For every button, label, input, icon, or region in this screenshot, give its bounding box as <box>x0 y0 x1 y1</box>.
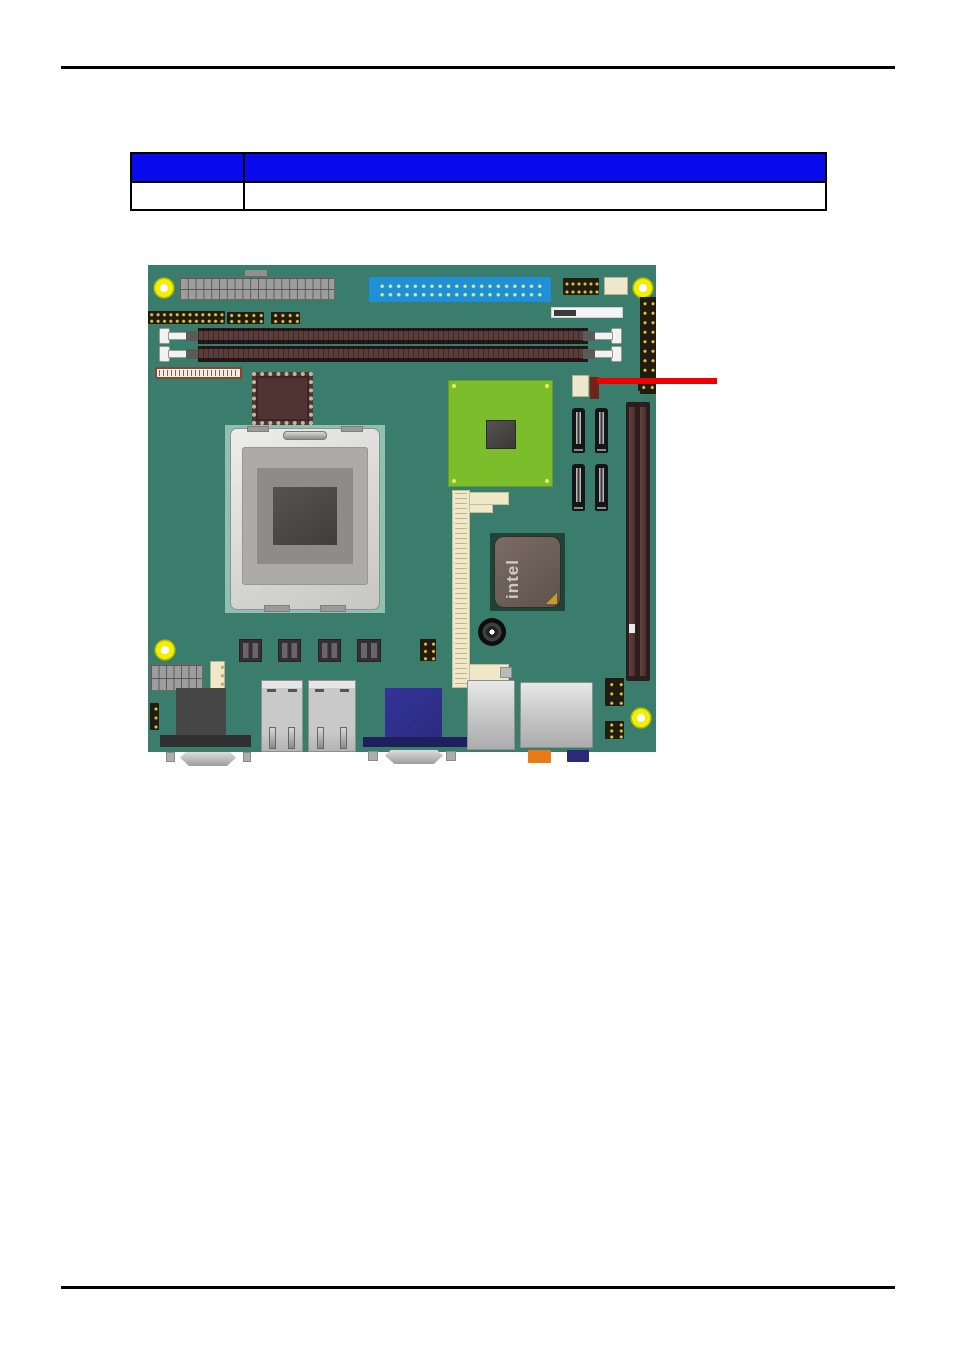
serial-port-body <box>176 688 226 735</box>
rj45-mark <box>267 689 276 692</box>
front-panel-header-long <box>148 311 225 324</box>
southbridge-chip: intel <box>494 536 561 608</box>
spec-table-header-cell-2 <box>245 154 825 181</box>
pin-header-1x3 <box>150 703 159 730</box>
intel-logo-text: intel <box>503 547 523 599</box>
ide-connector <box>369 277 551 302</box>
heatsink-corner-dot <box>452 384 456 388</box>
slot-rail <box>640 407 646 676</box>
spec-table <box>130 152 827 211</box>
slot-rail <box>629 407 635 676</box>
cpu-socket-tab-bottom-left <box>264 605 290 612</box>
audio-jack-blue <box>567 750 589 762</box>
northbridge-die <box>486 420 516 449</box>
northbridge-heatsink <box>448 380 553 487</box>
cpu-socket-tab-bottom-right <box>320 605 346 612</box>
pin-header-2x3-right-lower <box>605 721 624 739</box>
rj45-mark <box>315 689 324 692</box>
mount-hole-top-left <box>153 277 175 299</box>
pin-header-2x3-center <box>420 639 436 661</box>
pin-header-2x6-top <box>563 278 599 295</box>
rj45-latch-pin <box>269 727 276 749</box>
sata-key <box>574 449 583 451</box>
mosfet-pads <box>322 643 337 658</box>
mount-hole-top-right <box>632 277 654 299</box>
mosfet <box>239 639 262 662</box>
cpu-socket-tab-top-right <box>341 426 363 432</box>
power-connector-top-right <box>604 277 628 295</box>
cpu-socket-die-area <box>273 487 337 545</box>
spec-table-body-cell-1 <box>132 183 245 209</box>
heatsink-corner-dot <box>452 479 456 483</box>
ide-pin-dots <box>377 281 543 298</box>
spec-table-body-cell-2 <box>245 183 825 209</box>
heatsink-corner-dot <box>545 479 549 483</box>
parallel-port-header <box>150 664 203 691</box>
cpu-socket-tab-top-left <box>247 426 269 432</box>
dimm1-clip-left <box>186 331 198 341</box>
vga-screw-tab <box>368 751 378 761</box>
sodimm-contacts <box>455 493 467 685</box>
manual-page: { "document": { "table": { "header_cells… <box>0 0 954 1351</box>
spec-table-header-row <box>132 154 825 183</box>
front-panel-header-mid <box>227 312 264 324</box>
mount-hole-bottom-left <box>154 639 176 661</box>
page-top-rule <box>61 66 895 69</box>
motherboard-figure: intel <box>148 265 656 752</box>
vga-connector-body <box>385 688 442 742</box>
usb-stack-1 <box>467 680 515 750</box>
rj45-latch-pin <box>340 727 347 749</box>
buzzer <box>478 618 506 646</box>
fan-connector <box>572 375 589 397</box>
vga-screw-tab <box>446 751 456 761</box>
label-bar <box>551 307 623 318</box>
mosfet <box>318 639 341 662</box>
spec-table-header-cell-1 <box>132 154 245 181</box>
southbridge-pad: intel <box>490 533 565 611</box>
mosfet <box>357 639 381 662</box>
db9-serial-connector <box>180 752 236 766</box>
sata-slot <box>599 412 604 444</box>
db9-screw-tab <box>166 752 175 762</box>
fpc-contacts <box>159 370 238 376</box>
dimm1-clip-right <box>583 331 595 341</box>
sata-port-2 <box>595 408 608 453</box>
atx-power-connector <box>179 277 335 300</box>
rj45-mark <box>340 689 349 692</box>
vga-connector-base <box>363 737 467 747</box>
cpu-keepout-zone <box>225 425 385 613</box>
sata-slot <box>576 412 581 444</box>
serial-port-base <box>160 735 251 747</box>
rj45-latch-pin <box>317 727 324 749</box>
rj45-ethernet-port-1 <box>261 680 303 752</box>
slot-key-notch <box>629 624 635 633</box>
sata-port-4 <box>595 464 608 511</box>
expansion-slot-vertical <box>626 402 650 681</box>
sata-key <box>574 507 583 509</box>
sata-port-3 <box>572 464 585 511</box>
front-panel-header-small <box>271 312 300 324</box>
cpu-socket-plate <box>242 447 368 585</box>
page-bottom-rule <box>61 1286 895 1289</box>
audio-jack-orange <box>528 750 551 763</box>
sodimm-socket <box>452 490 470 688</box>
label-chip <box>554 310 576 316</box>
dimm2-clip-right <box>583 349 595 359</box>
sata-key <box>597 449 606 451</box>
rj45-latch-pin <box>288 727 295 749</box>
cpu-socket-load-clip <box>283 431 327 440</box>
mount-hole-bottom-right <box>630 707 652 729</box>
rj45-mark <box>288 689 297 692</box>
dimm-slot-area <box>159 328 622 363</box>
atx-connector-tab <box>245 270 267 276</box>
mosfet-pads <box>282 643 297 658</box>
mosfet <box>278 639 301 662</box>
db15-vga-connector <box>385 750 443 764</box>
callout-line <box>597 378 717 384</box>
cpu-socket-inner <box>257 468 353 564</box>
dimm2-clip-left <box>186 349 198 359</box>
sata-key <box>597 507 606 509</box>
pin1-gold-triangle <box>546 593 557 604</box>
fpc-connector <box>155 367 242 379</box>
mosfet-pads <box>243 643 258 658</box>
dimm-slot-2 <box>198 346 588 362</box>
bios-qfp-chip <box>252 372 313 425</box>
heatsink-corner-dot <box>545 384 549 388</box>
rj45-ethernet-port-2 <box>308 680 356 752</box>
spec-table-body-row <box>132 183 825 209</box>
usb-stack-2 <box>520 682 593 748</box>
mosfet-pads <box>361 643 377 658</box>
pin-header-2x3-right-upper <box>605 678 624 706</box>
sata-port-1 <box>572 408 585 453</box>
dimm-slot-1 <box>198 328 588 344</box>
sata-slot <box>576 468 581 502</box>
sata-slot <box>599 468 604 502</box>
sodimm-end-cap <box>500 667 512 678</box>
sodimm-arm-top-step <box>469 504 493 513</box>
cpu-socket-lga775 <box>230 428 380 610</box>
db9-screw-tab <box>243 752 251 762</box>
